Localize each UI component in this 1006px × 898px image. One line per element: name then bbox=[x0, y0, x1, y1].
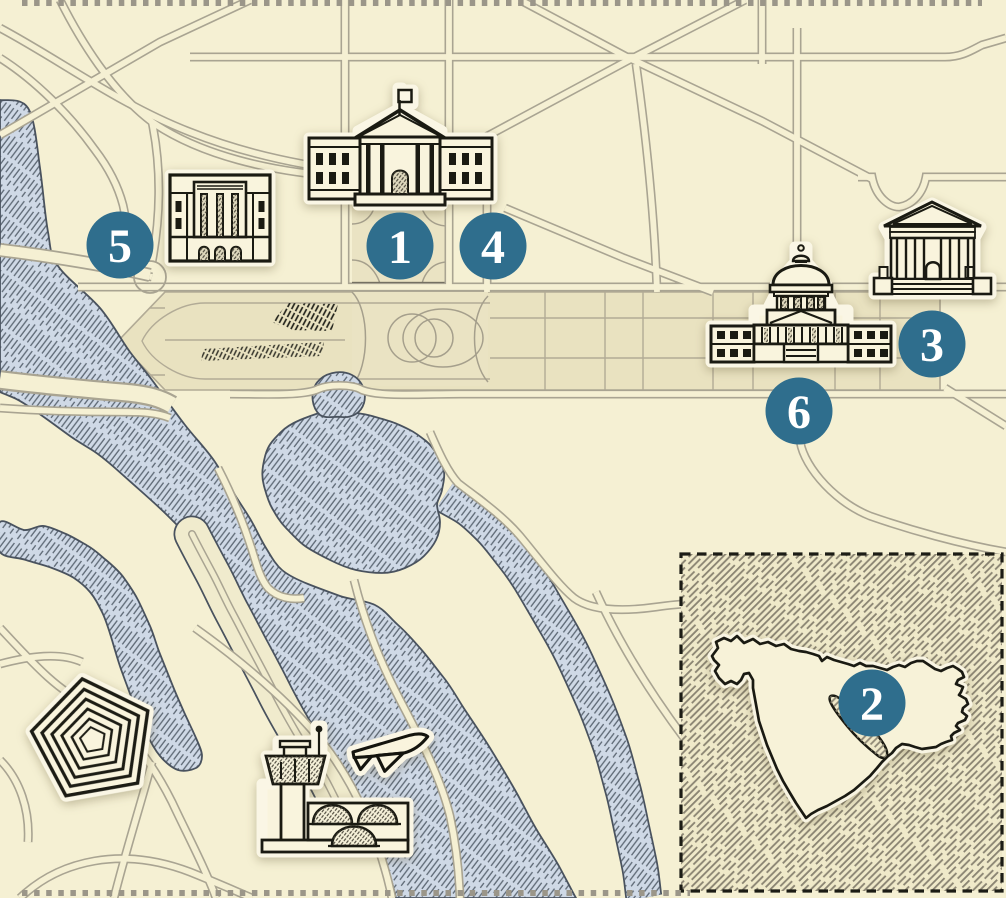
svg-text:5: 5 bbox=[108, 220, 132, 273]
svg-text:2: 2 bbox=[860, 678, 884, 731]
svg-text:6: 6 bbox=[787, 386, 811, 439]
svg-text:1: 1 bbox=[388, 221, 412, 274]
svg-text:4: 4 bbox=[481, 221, 505, 274]
svg-text:3: 3 bbox=[920, 319, 944, 372]
